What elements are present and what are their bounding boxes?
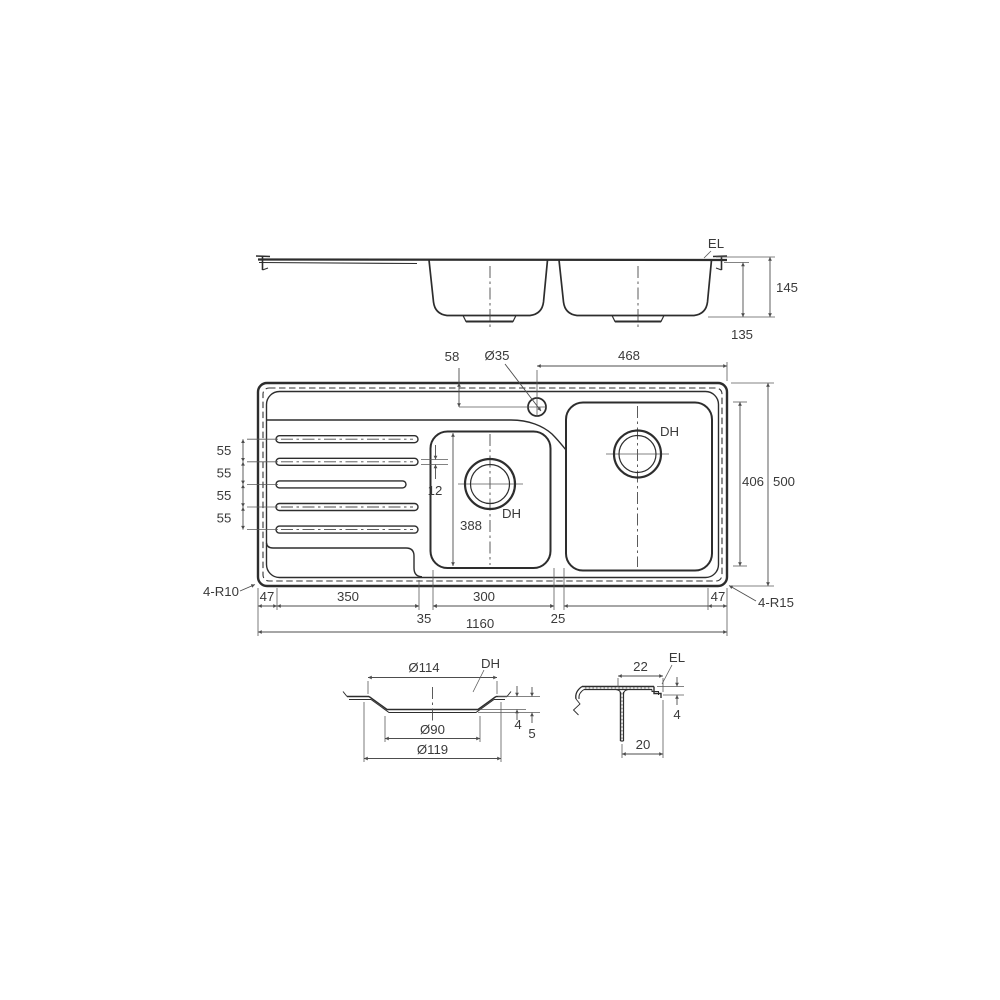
elevation-top-surface [258, 260, 727, 261]
break-line [574, 699, 581, 715]
dim-5-depth: 5 [528, 726, 535, 741]
label-dh-detail: DH [481, 656, 500, 671]
dim-55-1: 55 [217, 443, 232, 458]
dim-4-depth: 4 [514, 717, 521, 732]
dim-47-left: 47 [260, 589, 275, 604]
groove-width-dim: 12 [421, 445, 448, 498]
el-leader [704, 251, 711, 258]
label-4r15: 4-R15 [758, 595, 794, 610]
elevation-large-bowl [559, 260, 712, 316]
label-el-elevation: EL [708, 236, 724, 251]
plan-outer-edge [258, 383, 727, 586]
dim-35: 35 [417, 611, 432, 626]
dim-90: Ø90 [420, 722, 445, 737]
tap-hole [527, 397, 547, 417]
dim-145: 145 [776, 280, 798, 295]
small-bowl: DH 388 [431, 432, 551, 569]
label-dh-large: DH [660, 424, 679, 439]
dim-114: Ø114 [408, 660, 439, 675]
dim-119: Ø119 [417, 742, 448, 757]
dim-25: 25 [551, 611, 566, 626]
drawing-sheet: EL 145 135 [0, 0, 1000, 1000]
label-el-detail: EL [669, 650, 685, 665]
dim-468: 468 [618, 348, 640, 363]
plan-dashed-line [263, 388, 722, 581]
label-4r10: 4-R10 [203, 584, 239, 599]
sink-technical-drawing: EL 145 135 [0, 0, 1000, 1000]
dim-58: 58 [445, 349, 460, 364]
bottom-dim-chain: 47 350 35 300 25 47 1160 [258, 568, 727, 636]
dim-20: 20 [636, 737, 651, 752]
right-clip [713, 256, 727, 270]
elevation-view: EL 145 135 [256, 236, 798, 342]
dim-406: 406 [742, 474, 764, 489]
elevation-small-bowl [429, 260, 548, 316]
dim-47-right: 47 [711, 589, 726, 604]
edge-lip-step [654, 687, 661, 699]
dim-55-3: 55 [217, 488, 232, 503]
dim-22: 22 [633, 659, 648, 674]
dim-350: 350 [337, 589, 359, 604]
drainer-step-line [267, 543, 423, 577]
dim-12: 12 [428, 483, 443, 498]
label-dh-small: DH [502, 506, 521, 521]
dim-1160: 1160 [466, 616, 494, 631]
r10-leader [240, 585, 255, 592]
dim-4-lip: 4 [673, 707, 680, 722]
elevation-drainer-slope [259, 263, 417, 264]
drainer-grooves [276, 436, 418, 533]
dim-388: 388 [460, 518, 482, 533]
dim-300: 300 [473, 589, 495, 604]
drain-hole-detail: Ø114 DH Ø90 Ø119 4 5 [343, 656, 540, 762]
dim-tap-dia: Ø35 [485, 348, 510, 363]
dim-55-2: 55 [217, 466, 232, 481]
groove-pitch-dims: 55 55 55 55 [217, 439, 278, 529]
plan-view: DH 388 DH 58 Ø35 [203, 348, 795, 636]
r15-leader [729, 586, 756, 602]
edge-lip-detail: 22 EL 4 20 [574, 650, 686, 758]
dim-500: 500 [773, 474, 795, 489]
dim-55-4: 55 [217, 511, 232, 526]
dim-135: 135 [731, 327, 753, 342]
large-bowl: DH [566, 403, 712, 571]
